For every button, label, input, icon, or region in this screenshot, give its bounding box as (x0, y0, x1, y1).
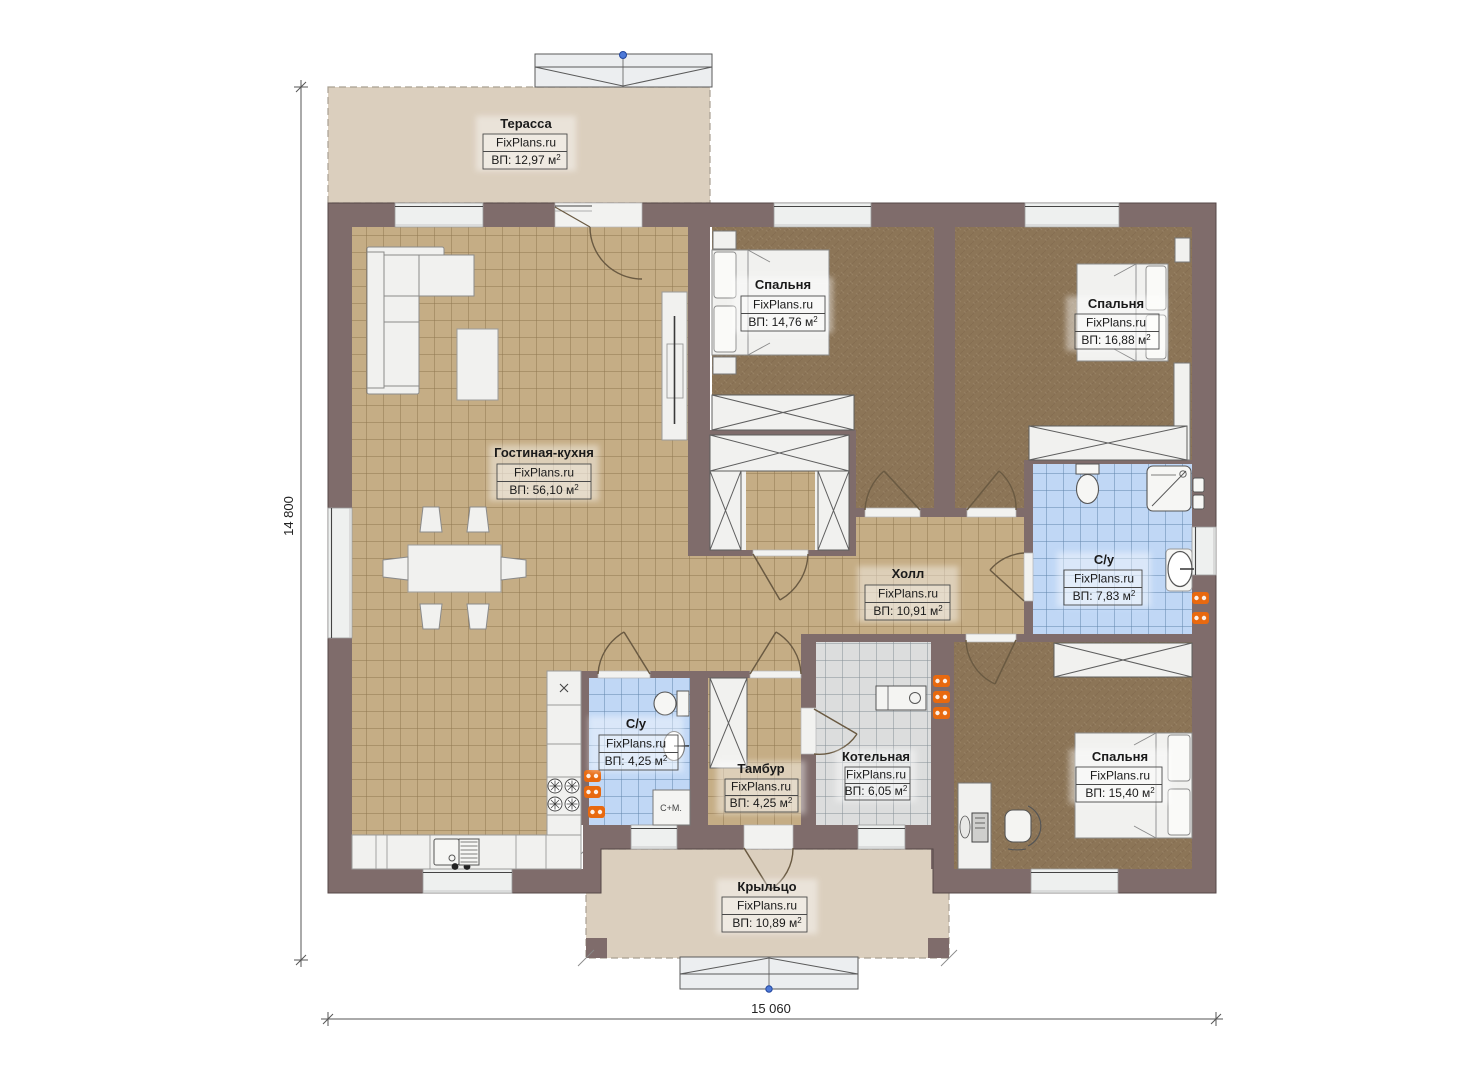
svg-text:ВП: 6,05 м2: ВП: 6,05 м2 (845, 784, 908, 798)
svg-text:FixPlans.ru: FixPlans.ru (1086, 316, 1146, 330)
svg-text:ВП: 16,88 м2: ВП: 16,88 м2 (1081, 333, 1151, 347)
svg-text:Гостиная-кухня: Гостиная-кухня (494, 445, 594, 460)
svg-text:Крыльцо: Крыльцо (737, 879, 796, 894)
svg-text:С/у: С/у (1094, 552, 1115, 567)
svg-text:С+М.: С+М. (660, 803, 682, 813)
svg-text:FixPlans.ru: FixPlans.ru (1090, 769, 1150, 783)
svg-text:FixPlans.ru: FixPlans.ru (846, 768, 906, 782)
svg-text:ВП: 14,76 м2: ВП: 14,76 м2 (748, 315, 818, 329)
svg-text:ВП: 7,83 м2: ВП: 7,83 м2 (1073, 589, 1136, 603)
svg-text:Терасса: Терасса (500, 116, 552, 131)
svg-text:Спальня: Спальня (1088, 296, 1144, 311)
svg-text:15 060: 15 060 (751, 1001, 791, 1016)
svg-text:Холл: Холл (892, 566, 925, 581)
svg-text:Спальня: Спальня (1092, 749, 1148, 764)
svg-text:FixPlans.ru: FixPlans.ru (731, 780, 791, 794)
svg-text:FixPlans.ru: FixPlans.ru (514, 466, 574, 480)
svg-text:Спальня: Спальня (755, 277, 811, 292)
svg-text:FixPlans.ru: FixPlans.ru (1074, 572, 1134, 586)
svg-text:FixPlans.ru: FixPlans.ru (496, 136, 556, 150)
svg-text:Тамбур: Тамбур (737, 761, 784, 776)
svg-text:ВП: 4,25 м2: ВП: 4,25 м2 (605, 754, 668, 768)
svg-text:ВП: 10,91 м2: ВП: 10,91 м2 (873, 604, 943, 618)
svg-text:FixPlans.ru: FixPlans.ru (878, 587, 938, 601)
svg-text:FixPlans.ru: FixPlans.ru (606, 737, 666, 751)
svg-text:FixPlans.ru: FixPlans.ru (737, 899, 797, 913)
svg-text:С/у: С/у (626, 716, 647, 731)
svg-text:ВП: 56,10 м2: ВП: 56,10 м2 (509, 483, 579, 497)
svg-text:Котельная: Котельная (842, 749, 910, 764)
svg-text:FixPlans.ru: FixPlans.ru (753, 298, 813, 312)
svg-text:ВП: 4,25 м2: ВП: 4,25 м2 (730, 796, 793, 810)
svg-text:ВП: 12,97 м2: ВП: 12,97 м2 (491, 153, 561, 167)
svg-text:ВП: 10,89 м2: ВП: 10,89 м2 (732, 916, 802, 930)
svg-text:14 800: 14 800 (281, 496, 296, 536)
svg-text:ВП: 15,40 м2: ВП: 15,40 м2 (1085, 786, 1155, 800)
